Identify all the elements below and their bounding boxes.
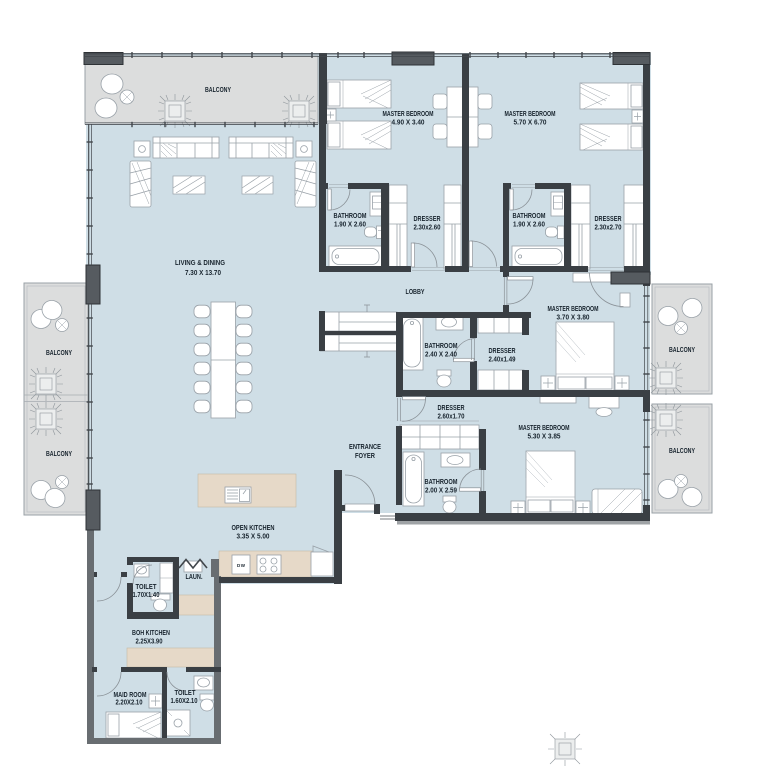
svg-text:LOBBY: LOBBY <box>406 287 425 296</box>
svg-text:DW: DW <box>237 563 246 568</box>
svg-text:BALCONY: BALCONY <box>205 85 231 94</box>
svg-text:2.30x2.60: 2.30x2.60 <box>414 223 441 232</box>
svg-text:BALCONY: BALCONY <box>669 345 695 354</box>
svg-text:2.25X3.90: 2.25X3.90 <box>136 637 163 646</box>
svg-text:2.00 X 2.59: 2.00 X 2.59 <box>425 486 457 495</box>
svg-text:2.20X2.10: 2.20X2.10 <box>116 698 143 707</box>
svg-text:1.90 X 2.60: 1.90 X 2.60 <box>334 220 366 229</box>
svg-text:LIVING & DINING: LIVING & DINING <box>175 258 225 267</box>
svg-text:2.40x1.49: 2.40x1.49 <box>489 355 516 364</box>
svg-text:FOYER: FOYER <box>355 451 376 460</box>
svg-text:1.60X2.10: 1.60X2.10 <box>171 696 198 705</box>
svg-text:BALCONY: BALCONY <box>46 348 72 357</box>
svg-text:7.30 X 13.70: 7.30 X 13.70 <box>185 268 221 277</box>
svg-text:BALCONY: BALCONY <box>46 449 72 458</box>
svg-text:BALCONY: BALCONY <box>669 446 695 455</box>
svg-text:4.90 X 3.40: 4.90 X 3.40 <box>392 118 425 127</box>
svg-text:5.30 X 3.85: 5.30 X 3.85 <box>528 432 561 441</box>
svg-text:3.70 X 3.80: 3.70 X 3.80 <box>557 313 590 322</box>
svg-text:2.30x2.70: 2.30x2.70 <box>595 223 622 232</box>
svg-text:2.40 X 2.40: 2.40 X 2.40 <box>425 350 457 359</box>
svg-text:ENTRANCE: ENTRANCE <box>349 442 381 451</box>
svg-text:1.90 X 2.60: 1.90 X 2.60 <box>513 220 545 229</box>
svg-text:2.60x1.70: 2.60x1.70 <box>438 412 465 421</box>
svg-text:1.70X1.40: 1.70X1.40 <box>133 590 160 599</box>
svg-text:3.35 X 5.00: 3.35 X 5.00 <box>237 532 270 541</box>
svg-text:5.70 X 6.70: 5.70 X 6.70 <box>514 118 547 127</box>
svg-text:LAUN.: LAUN. <box>186 572 203 581</box>
